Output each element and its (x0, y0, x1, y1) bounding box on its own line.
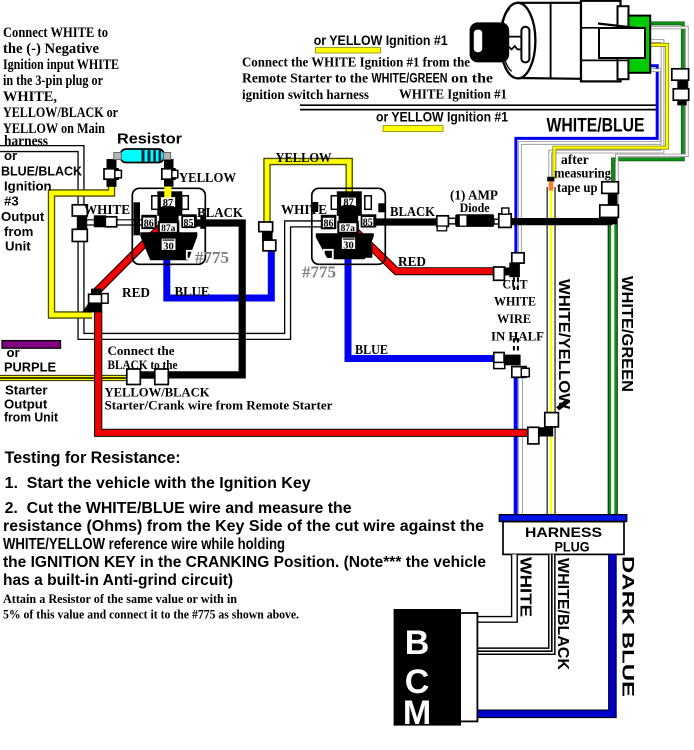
svg-text:measuring: measuring (554, 166, 611, 181)
svg-text:Starter/Crank wire from Remote: Starter/Crank wire from Remote Starter (105, 399, 333, 413)
svg-text:Resistor: Resistor (117, 131, 182, 148)
svg-text:or YELLOW Ignition #1: or YELLOW Ignition #1 (376, 110, 508, 125)
svg-text:Attain a Resistor of the same: Attain a Resistor of the same value or w… (3, 591, 238, 606)
svg-text:on the: on the (451, 72, 493, 87)
svg-text:ignition switch harness: ignition switch harness (242, 88, 370, 103)
svg-text:Connect the WHITE Ignition #1: Connect the WHITE Ignition #1 from the (242, 56, 470, 71)
svg-text:DARK BLUE: DARK BLUE (619, 556, 637, 697)
svg-text:BLACK to the: BLACK to the (108, 357, 178, 372)
svg-text:YELLOW: YELLOW (276, 151, 332, 166)
svg-text:WHITE/GREEN: WHITE/GREEN (372, 71, 448, 86)
svg-text:WHITE/BLACK: WHITE/BLACK (554, 558, 571, 671)
svg-text:#775: #775 (195, 248, 229, 267)
svg-text:1. Start the vehicle with the: 1. Start the vehicle with the Ignition K… (5, 475, 311, 492)
svg-text:from Unit: from Unit (4, 410, 59, 425)
svg-text:from: from (4, 224, 33, 239)
svg-text:PLUG: PLUG (555, 539, 590, 555)
svg-text:#3: #3 (4, 194, 19, 209)
svg-text:Diode: Diode (460, 200, 490, 215)
svg-text:YELLOW/BLACK or: YELLOW/BLACK or (3, 105, 118, 121)
svg-text:#775: #775 (302, 263, 336, 282)
svg-text:B: B (405, 624, 430, 662)
svg-text:WHITE: WHITE (84, 203, 130, 218)
svg-text:YELLOW/BLACK: YELLOW/BLACK (105, 385, 211, 400)
svg-text:2. Cut the WHITE/BLUE wire an: 2. Cut the WHITE/BLUE wire and measure t… (5, 500, 352, 517)
svg-text:BLACK: BLACK (197, 206, 243, 221)
svg-text:87a: 87a (161, 224, 176, 234)
svg-text:WHITE Ignition #1: WHITE Ignition #1 (399, 88, 507, 103)
svg-text:M: M (403, 694, 431, 732)
svg-text:the (-) Negative: the (-) Negative (3, 41, 99, 57)
svg-text:Unit: Unit (5, 239, 31, 254)
svg-text:or YELLOW Ignition #1: or YELLOW Ignition #1 (314, 33, 448, 48)
svg-text:RED: RED (122, 286, 150, 301)
svg-text:Ignition input WHITE: Ignition input WHITE (3, 57, 119, 73)
svg-text:BLUE: BLUE (175, 285, 210, 300)
svg-text:BLUE/BLACK: BLUE/BLACK (1, 164, 82, 179)
svg-text:WHITE/YELLOW: WHITE/YELLOW (555, 279, 572, 409)
svg-text:BLUE: BLUE (355, 343, 388, 358)
svg-text:Connect the: Connect the (108, 343, 175, 358)
svg-text:IN HALF: IN HALF (491, 329, 544, 344)
svg-text:30: 30 (163, 241, 174, 252)
svg-text:87: 87 (343, 198, 354, 209)
svg-text:Connect WHITE to: Connect WHITE to (3, 25, 108, 41)
svg-text:WHITE: WHITE (281, 203, 327, 218)
svg-text:or: or (7, 345, 20, 360)
svg-text:resistance (Ohms) from the Key: resistance (Ohms) from the Key Side of t… (3, 518, 484, 535)
svg-text:WHITE: WHITE (517, 557, 534, 617)
svg-text:WHITE: WHITE (494, 294, 536, 309)
svg-text:the IGNITION KEY in the CRANKI: the IGNITION KEY in the CRANKING Positio… (3, 554, 486, 571)
svg-text:WHITE/GREEN: WHITE/GREEN (618, 276, 635, 392)
svg-text:Remote Starter to the: Remote Starter to the (242, 72, 368, 87)
svg-text:YELLOW: YELLOW (179, 171, 236, 186)
svg-text:WHITE,: WHITE, (3, 89, 57, 105)
svg-text:Testing for Resistance:: Testing for Resistance: (5, 448, 181, 467)
svg-text:WHITE/YELLOW reference wire wh: WHITE/YELLOW reference wire while holdin… (3, 536, 285, 553)
svg-text:in the 3-pin plug or: in the 3-pin plug or (3, 73, 103, 89)
svg-text:Output: Output (1, 209, 45, 224)
svg-text:PURPLE: PURPLE (4, 360, 56, 375)
svg-text:WIRE: WIRE (497, 311, 531, 326)
svg-text:WHITE/BLUE: WHITE/BLUE (547, 116, 645, 137)
svg-text:30: 30 (343, 240, 354, 251)
svg-text:has a built-in Anti-grind circ: has a built-in Anti-grind circuit) (3, 572, 233, 589)
svg-text:87a: 87a (341, 224, 356, 234)
svg-text:BLACK: BLACK (390, 205, 435, 220)
svg-text:or: or (4, 148, 17, 163)
svg-text:5% of this value and connect i: 5% of this value and connect it to the #… (3, 607, 299, 622)
svg-text:RED: RED (398, 255, 426, 270)
svg-text:Starter: Starter (5, 383, 48, 398)
svg-text:Ignition: Ignition (4, 179, 52, 194)
svg-text:tape up: tape up (557, 180, 598, 195)
svg-text:CUT: CUT (503, 277, 528, 292)
